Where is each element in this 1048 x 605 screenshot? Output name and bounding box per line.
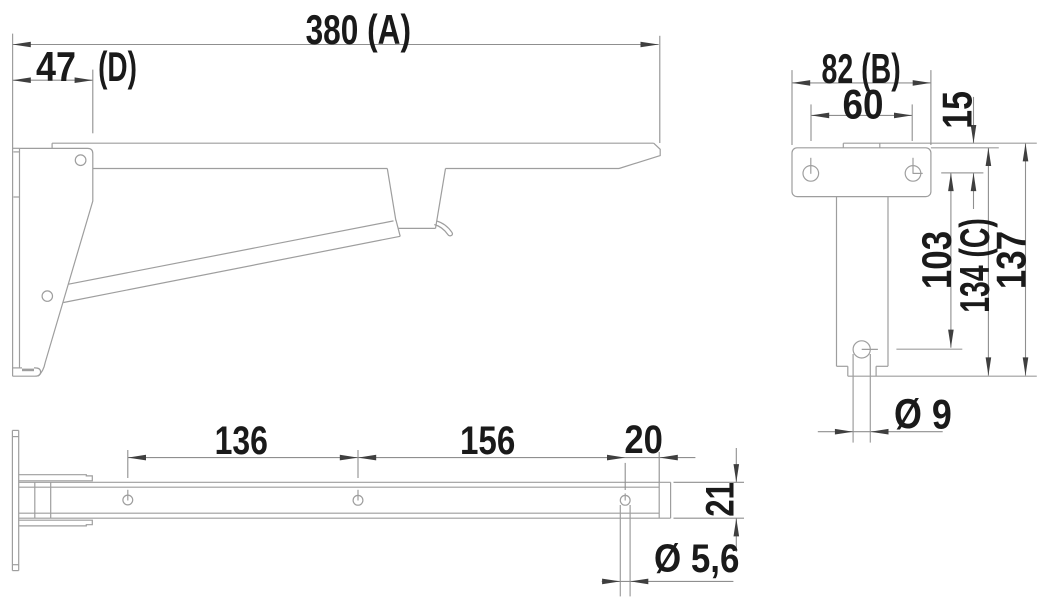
svg-text:21: 21: [698, 482, 742, 517]
svg-text:380 (A): 380 (A): [306, 6, 411, 53]
svg-text:20: 20: [624, 418, 663, 462]
svg-text:(D): (D): [98, 43, 137, 90]
svg-text:47: 47: [36, 43, 76, 90]
svg-text:156: 156: [460, 419, 515, 463]
svg-text:15: 15: [934, 91, 981, 129]
svg-text:Ø 5,6: Ø 5,6: [654, 537, 739, 581]
svg-text:60: 60: [843, 81, 884, 128]
svg-text:137: 137: [988, 231, 1035, 289]
svg-text:136: 136: [215, 419, 268, 463]
svg-text:Ø 9: Ø 9: [894, 391, 952, 438]
